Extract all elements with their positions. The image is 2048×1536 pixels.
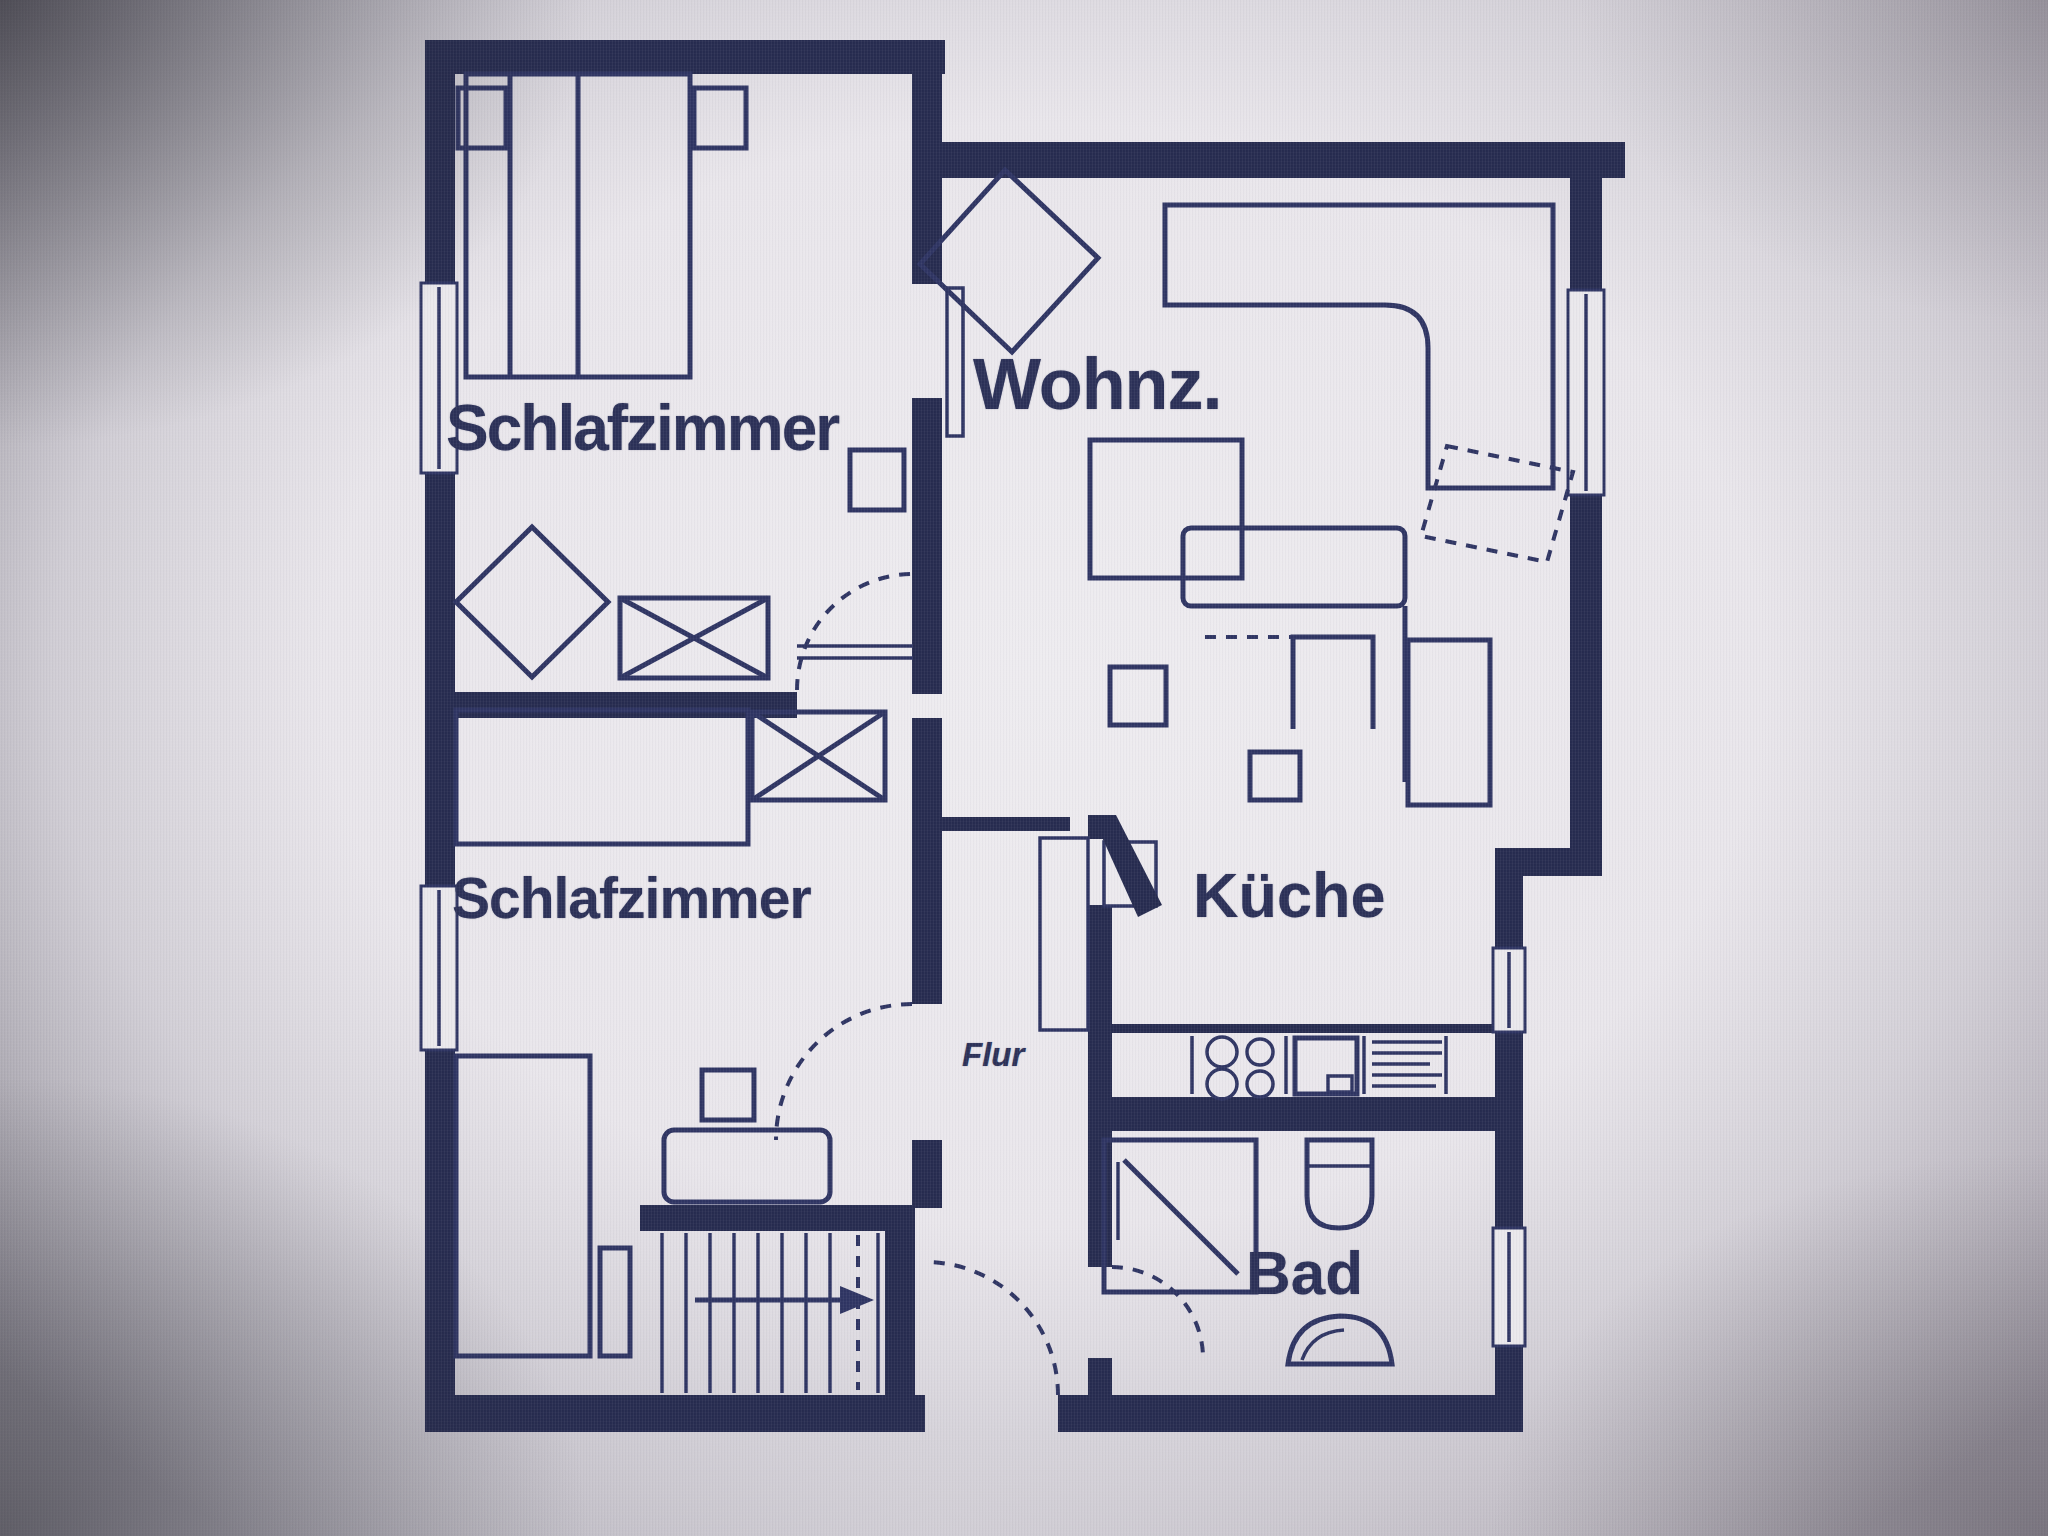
bed-icon — [456, 1056, 590, 1356]
kitchen-furniture — [1100, 528, 1492, 1099]
walls — [425, 40, 1625, 1432]
room-label-bathroom: Bad — [1246, 1242, 1363, 1304]
wall-segment — [425, 40, 945, 74]
door-swing-arc-bedroom-1 — [797, 574, 913, 690]
staircase-icon — [662, 1233, 878, 1393]
screen-photo-of-floor-plan: Schlafzimmer Wohnz. Schlafzimmer Küche B… — [0, 0, 2048, 1536]
stove-burner-icon — [1207, 1037, 1237, 1067]
room-label-living: Wohnz. — [973, 348, 1222, 420]
chair-icon — [1250, 752, 1300, 800]
wall-segment — [912, 718, 942, 1004]
chair-icon — [1110, 667, 1166, 725]
wall-segment — [425, 692, 797, 718]
bedroom-1-furniture — [456, 74, 904, 678]
wall-segment — [425, 40, 455, 1432]
stove-burner-icon — [1247, 1071, 1273, 1097]
wall-segment — [885, 1205, 915, 1395]
armchair-diamond-icon — [1421, 446, 1573, 562]
counter-edge-line — [1100, 1024, 1492, 1033]
stove-burner-icon — [1247, 1039, 1273, 1065]
sink-icon — [1295, 1038, 1357, 1094]
stove-burner-icon — [1207, 1069, 1237, 1099]
desk-icon — [664, 1130, 830, 1202]
bed-icon — [456, 710, 748, 844]
room-label-kitchen: Küche — [1193, 864, 1386, 927]
room-label-bedroom-2: Schlafzimmer — [452, 870, 811, 927]
door-swing-arc-bathroom — [1112, 1267, 1203, 1358]
chair-icon — [702, 1070, 754, 1120]
toilet-icon — [1307, 1140, 1372, 1228]
nightstand-icon — [694, 88, 746, 148]
wall-segment — [1495, 848, 1602, 876]
wall-segment — [1570, 142, 1602, 864]
wall-segment — [912, 1140, 942, 1208]
wall-segment — [925, 142, 1625, 178]
wall-segment — [425, 1395, 925, 1432]
stool-icon — [850, 450, 904, 510]
wall-segment — [640, 1205, 915, 1231]
table-icon — [1090, 440, 1242, 578]
kitchen-table-icon — [1408, 640, 1490, 805]
room-label-hallway: Flur — [962, 1038, 1024, 1071]
wall-segment — [1058, 1395, 1523, 1432]
wardrobe-icon — [1040, 838, 1088, 1030]
room-label-bedroom-1: Schlafzimmer — [446, 396, 838, 460]
wall-segment — [912, 398, 942, 694]
bench-icon — [1293, 637, 1373, 729]
washbasin-inner-line — [1302, 1330, 1344, 1360]
wall-segment — [928, 817, 1070, 831]
door-leaf-living-room — [947, 288, 963, 436]
sink-drain-icon — [1328, 1076, 1352, 1092]
corner-sofa-icon — [1165, 205, 1553, 488]
door-swing-arc-entrance — [925, 1262, 1058, 1395]
shelf-icon — [600, 1248, 630, 1356]
door-swing-arc-bedroom-2 — [776, 1004, 912, 1140]
shower-diagonal-line — [1124, 1160, 1238, 1274]
floor-plan-drawing — [0, 0, 2048, 1536]
sideboard-icon — [1183, 528, 1405, 606]
chair-diamond-icon — [456, 527, 608, 677]
wall-segment — [1088, 1097, 1523, 1131]
wall-segment — [1088, 1358, 1112, 1395]
bedroom-2-furniture — [456, 710, 885, 1356]
stair-arrow-head — [840, 1286, 874, 1314]
wall-segment — [1088, 905, 1112, 1267]
